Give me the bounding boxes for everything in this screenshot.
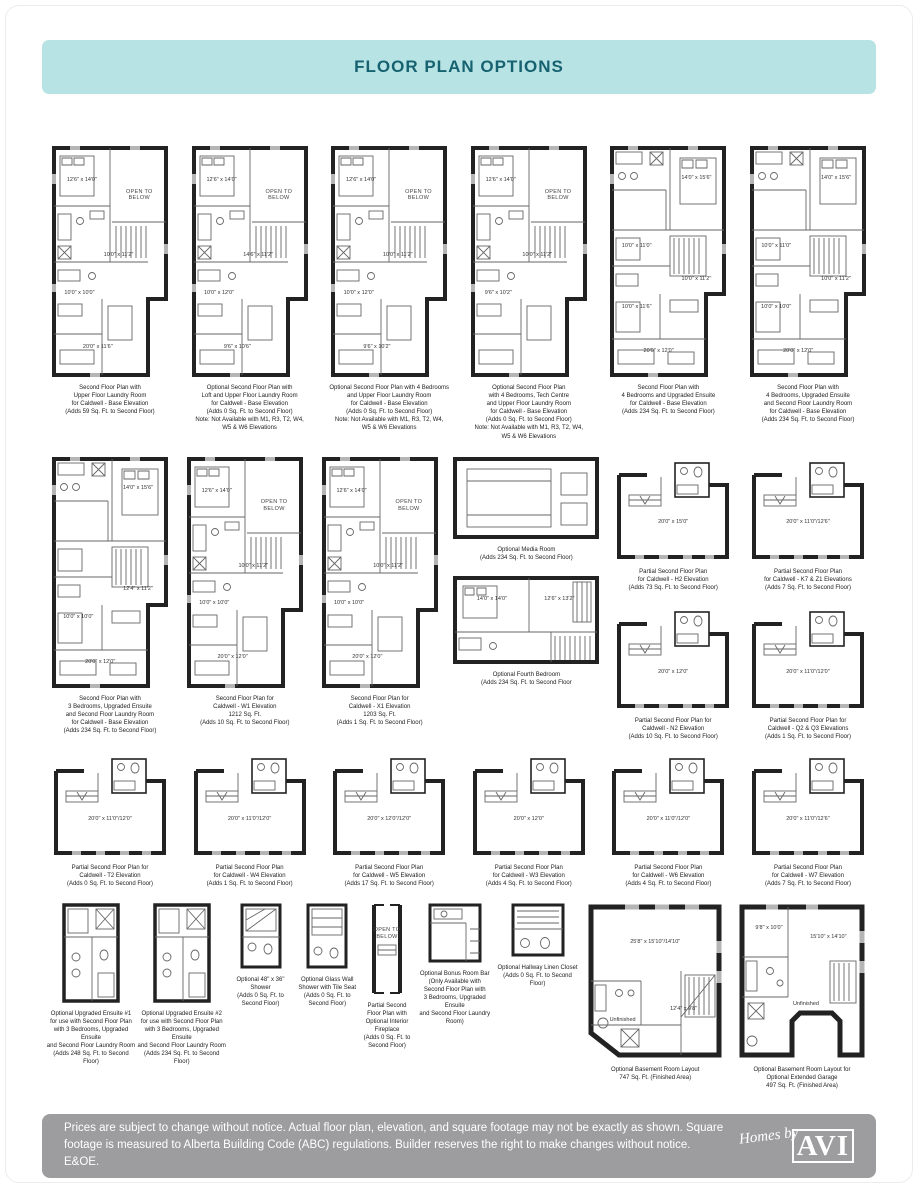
floor-plan-cell: Optional Upgraded Ensuite #1 for use wit… [46, 901, 136, 1067]
plan-caption: Second Floor Plan for Caldwell - W1 Elev… [200, 695, 289, 727]
room-dimension-label: 10'0" x 11'0" [612, 243, 661, 250]
floor-plan-drawing [58, 901, 124, 1005]
plan-caption: Second Floor Plan for Caldwell - X1 Elev… [337, 695, 423, 727]
room-dimension-label: 15'10" x 14'10" [794, 934, 863, 941]
room-dimension-label: 20'0" x 11'0"/12'0" [59, 816, 161, 823]
room-dimension-label: 20'0" x 11'0"/12'0" [198, 816, 300, 823]
floor-plan-drawing [451, 574, 601, 666]
floor-plan-cell: 14'0" x 14'0" 12'6" x 13'2" Optional Fou… [450, 574, 602, 687]
floor-plan-cell: 12'6" x 14'0" OPEN TO BELOW 10'0" x 11'2… [316, 455, 444, 727]
floor-plan-drawing [508, 901, 568, 959]
floor-plan-cell: Optional Hallway Linen Closet (Adds 0 Sq… [497, 901, 579, 988]
floor-plan-drawing [49, 751, 171, 859]
plan-row-3: 20'0" x 11'0"/12'0" Partial Second Floor… [46, 751, 872, 888]
room-dimension-label: 14'0" x 15'6" [668, 175, 724, 182]
floor-plan-drawing [328, 751, 450, 859]
room-dimension-label: 20'0" x 12'0"/12'0" [338, 816, 440, 823]
plan-caption: Partial Second Floor Plan for Caldwell -… [765, 864, 851, 888]
room-dimension-label: 12'6" x 14'0" [56, 177, 107, 184]
room-dimension-label: 20'0" x 11'0"/12'0" [757, 669, 859, 676]
plan-caption: Partial Second Floor Plan for Caldwell -… [344, 864, 433, 888]
room-dimension-label: 10'0" x 10'0" [54, 614, 103, 621]
floor-plan-stack: 20'0" x 11'0"/12'6" Partial Second Floor… [744, 455, 872, 742]
floor-plan-cell: 14'0" x 15'6" 10'0" x 11'0" 10'0" x 11'2… [744, 144, 872, 424]
room-dimension-label: 14'6" x 11'2" [230, 252, 286, 259]
floor-plan-stack: 20'0" x 15'0" Partial Second Floor Plan … [609, 455, 737, 742]
plan-caption: Partial Second Floor Plan for Caldwell -… [765, 717, 851, 741]
floor-plan-cell: Optional Bonus Room Bar (Only Available … [414, 901, 496, 1027]
page-header-banner: FLOOR PLAN OPTIONS [42, 40, 876, 94]
floor-plan-cell: Optional Upgraded Ensuite #2 for use wit… [137, 901, 227, 1067]
plan-caption: Optional Second Floor Plan with Loft and… [195, 384, 304, 433]
plan-caption: Partial Second Floor Plan for Caldwell -… [486, 864, 572, 888]
room-dimension-label: 25'8" x 15'10"/14'10" [598, 939, 712, 946]
floor-plan-drawing [149, 901, 215, 1005]
floor-plan-drawing [747, 604, 869, 712]
room-dimension-label: 20'0" x 11'6" [64, 344, 132, 351]
floor-plan-cell: OPEN TO BELOW Partial Second Floor Plan … [361, 901, 413, 1051]
floor-plan-stack: Optional Media Room (Adds 234 Sq. Ft. to… [450, 455, 602, 687]
floor-plan-cell: 12'6" x 14'0" OPEN TO BELOW 10'0" x 11'2… [325, 144, 453, 433]
room-dimension-label: 10'0" x 11'6" [612, 304, 661, 311]
plan-row-4: Optional Upgraded Ensuite #1 for use wit… [46, 901, 872, 1090]
room-dimension-label: 10'0" x 10'0" [323, 600, 374, 607]
room-dimension-label: 12'6" x 14'0" [475, 177, 526, 184]
open-to-below-label: OPEN TO BELOW [247, 499, 301, 512]
room-dimension-label: 14'0" x 14'0" [460, 596, 523, 603]
room-dimension-label: 10'0" x 11'2" [370, 252, 426, 259]
floor-plan-cell: 12'6" x 14'0" OPEN TO BELOW 10'0" x 11'2… [181, 455, 309, 727]
room-dimension-label: 12'4" x 9'8" [650, 1006, 718, 1013]
plan-caption: Partial Second Floor Plan for Caldwell -… [207, 864, 293, 888]
footer: Prices are subject to change without not… [42, 1114, 876, 1178]
floor-plan-drawing [365, 901, 409, 997]
room-dimension-label: 12'6" x 14'0" [196, 177, 247, 184]
floor-plan-cell: 20'0" x 12'0" Partial Second Floor Plan … [465, 751, 593, 888]
floor-plan-cell: 12'6" x 14'0" OPEN TO BELOW 10'0" x 11'2… [465, 144, 593, 441]
floor-plan-cell: Optional 48" x 36" Shower (Adds 0 Sq. Ft… [228, 901, 294, 1008]
room-dimension-label: 20'0" x 12'0" [478, 816, 580, 823]
room-dimension-label: 12'6" x 14'0" [336, 177, 387, 184]
room-dimension-label: 9'6" x 10'2" [343, 344, 411, 351]
room-dimension-label: 20'0" x 11'0"/12'0" [617, 816, 719, 823]
room-dimension-label: 10'0" x 11'2" [90, 252, 146, 259]
floor-plan-cell: 20'0" x 11'0"/12'0" Partial Second Floor… [604, 751, 732, 888]
floor-plan-drawing [303, 901, 351, 971]
floor-plan-drawing [189, 751, 311, 859]
floor-plan-cell: 20'0" x 11'0"/12'0" Partial Second Floor… [744, 604, 872, 741]
plan-caption: Optional Basement Room Layout 747 Sq. Ft… [611, 1066, 699, 1082]
room-dimension-label: 10'0" x 11'0" [752, 243, 801, 250]
floor-plan-drawing [451, 455, 601, 541]
room-dimension-label: 9'8" x 10'0" [744, 925, 794, 932]
floor-plan-cell: 25'8" x 15'10"/14'10" Unfinished 12'4" x… [579, 901, 731, 1082]
room-dimension-label: 20'0" x 12'0" [198, 654, 266, 661]
floor-plan-cell: 9'8" x 10'0" 15'10" x 14'10" Unfinished … [732, 901, 872, 1090]
floor-plan-cell: 20'0" x 11'0"/12'6" Partial Second Floor… [744, 751, 872, 888]
floor-plan-drawing [425, 901, 485, 965]
room-dimension-label: 20'0" x 12'0" [627, 348, 690, 355]
room-dimension-label: 9'6" x 10'2" [473, 290, 524, 297]
floor-plan-cell: 20'0" x 15'0" Partial Second Floor Plan … [609, 455, 737, 592]
plan-caption: Partial Second Floor Plan for Caldwell -… [628, 568, 717, 592]
plan-caption: Second Floor Plan with Upper Floor Laund… [65, 384, 154, 416]
room-dimension-label: 10'0" x 11'2" [808, 276, 864, 283]
floor-plan-cell: Optional Glass Wall Shower with Tile Sea… [294, 901, 360, 1008]
plan-caption: Second Floor Plan with 3 Bedrooms, Upgra… [64, 695, 157, 735]
floor-plan-cell: 20'0" x 12'0"/12'0" Partial Second Floor… [325, 751, 453, 888]
floor-plan-cell: 14'0" x 15'6" 12'4" x 11'2" 10'0" x 10'0… [46, 455, 174, 735]
room-dimension-label: 10'0" x 11'2" [225, 563, 281, 570]
brand-logo-name: AVI [792, 1129, 854, 1163]
plan-caption: Optional 48" x 36" Shower (Adds 0 Sq. Ft… [228, 976, 294, 1008]
room-dimension-label: 12'6" x 13'2" [529, 596, 589, 603]
plan-caption: Partial Second Floor Plan for Caldwell -… [628, 717, 717, 741]
plan-caption: Optional Media Room (Adds 234 Sq. Ft. to… [480, 546, 573, 562]
room-dimension-label: 20'0" x 15'0" [622, 519, 724, 526]
floor-plan-drawing [612, 455, 734, 563]
floor-plan-cell: 20'0" x 12'0" Partial Second Floor Plan … [609, 604, 737, 741]
plan-caption: Second Floor Plan with 4 Bedrooms and Up… [622, 384, 716, 416]
floor-plan-drawing [237, 901, 285, 971]
plan-caption: Optional Upgraded Ensuite #2 for use wit… [137, 1010, 227, 1067]
room-dimension-label: 10'0" x 11'2" [509, 252, 565, 259]
plan-caption: Partial Second Floor Plan for Caldwell -… [67, 864, 153, 888]
room-dimension-label: 20'0" x 12'0" [766, 348, 829, 355]
room-dimension-label: 12'4" x 11'2" [110, 586, 166, 593]
floor-plan-drawing [747, 751, 869, 859]
room-dimension-label: 10'0" x 12'0" [333, 290, 384, 297]
room-dimension-label: 20'0" x 12'0" [69, 659, 132, 666]
open-to-below-label: OPEN TO BELOW [382, 499, 436, 512]
plan-caption: Optional Fourth Bedroom (Adds 234 Sq. Ft… [481, 671, 572, 687]
plan-caption: Partial Second Floor Plan for Caldwell -… [625, 864, 711, 888]
room-dimension-label: 10'0" x 10'0" [189, 600, 240, 607]
plan-caption: Optional Second Floor Plan with 4 Bedroo… [329, 384, 449, 433]
plan-caption: Optional Second Floor Plan with 4 Bedroo… [475, 384, 584, 441]
room-dimension-label: 10'0" x 11'2" [360, 563, 416, 570]
footer-disclaimer: Prices are subject to change without not… [64, 1120, 724, 1172]
plan-caption: Second Floor Plan with 4 Bedrooms, Upgra… [762, 384, 855, 424]
plan-caption: Optional Glass Wall Shower with Tile Sea… [298, 976, 356, 1008]
room-dimension-label: 10'0" x 11'2" [668, 276, 724, 283]
floor-plan-drawing [612, 604, 734, 712]
floor-plan-cell: 20'0" x 11'0"/12'0" Partial Second Floor… [186, 751, 314, 888]
floor-plan-drawing [607, 751, 729, 859]
brand-logo-script: Homes by [738, 1125, 799, 1149]
room-dimension-label: 12'6" x 14'0" [326, 488, 377, 495]
floor-plan-drawing [468, 751, 590, 859]
floor-plan-cell: 20'0" x 11'0"/12'6" Partial Second Floor… [744, 455, 872, 592]
flyer-page: FLOOR PLAN OPTIONS 12'6" x 14'0" OPEN TO… [0, 0, 918, 1188]
plan-row-1: 12'6" x 14'0" OPEN TO BELOW 10'0" x 11'2… [46, 144, 872, 441]
floor-plan-drawing [747, 455, 869, 563]
floor-plan-cell: 14'0" x 15'6" 10'0" x 11'0" 10'0" x 11'2… [604, 144, 732, 416]
open-to-below-label: OPEN TO BELOW [392, 189, 446, 202]
floor-plan-drawing [584, 901, 726, 1061]
room-dimension-label: 10'0" x 10'0" [54, 290, 105, 297]
plan-caption: Optional Upgraded Ensuite #1 for use wit… [46, 1010, 136, 1067]
plan-row-2: 14'0" x 15'6" 12'4" x 11'2" 10'0" x 10'0… [46, 455, 872, 742]
brand-logo: Homes by AVI [732, 1129, 854, 1163]
room-dimension-label: 20'0" x 11'0"/12'6" [757, 519, 859, 526]
unfinished-label: Unfinished [593, 1017, 653, 1024]
plan-caption: Optional Bonus Room Bar (Only Available … [414, 970, 496, 1027]
room-dimension-label: 20'0" x 12'0" [622, 669, 724, 676]
floor-plan-cell: Optional Media Room (Adds 234 Sq. Ft. to… [450, 455, 602, 562]
open-to-below-label: OPEN TO BELOW [252, 189, 306, 202]
open-to-below-label: OPEN TO BELOW [112, 189, 166, 202]
floor-plan-cell: 20'0" x 11'0"/12'0" Partial Second Floor… [46, 751, 174, 888]
room-dimension-label: 14'0" x 15'6" [110, 485, 166, 492]
plan-caption: Optional Basement Room Layout for Option… [753, 1066, 850, 1090]
room-dimension-label: 14'0" x 15'6" [808, 175, 864, 182]
room-dimension-label: 12'6" x 14'0" [191, 488, 242, 495]
room-dimension-label: 10'0" x 10'0" [752, 304, 801, 311]
plan-caption: Partial Second Floor Plan for Caldwell -… [764, 568, 852, 592]
open-to-below-label: OPEN TO BELOW [531, 189, 585, 202]
plan-caption: Optional Hallway Linen Closet (Adds 0 Sq… [497, 964, 579, 988]
room-dimension-label: 9'6" x 10'6" [203, 344, 271, 351]
floor-plan-cell: 12'6" x 14'0" OPEN TO BELOW 10'0" x 11'2… [46, 144, 174, 416]
room-dimension-label: 20'0" x 11'0"/12'6" [757, 816, 859, 823]
plan-caption: Partial Second Floor Plan with Optional … [361, 1002, 413, 1051]
floor-plan-cell: 12'6" x 14'0" OPEN TO BELOW 14'6" x 11'2… [186, 144, 314, 433]
unfinished-label: Unfinished [776, 1001, 837, 1008]
room-dimension-label: 20'0" x 12'0" [333, 654, 401, 661]
floor-plan-grid: 12'6" x 14'0" OPEN TO BELOW 10'0" x 11'2… [46, 144, 872, 1090]
page-title: FLOOR PLAN OPTIONS [354, 57, 564, 77]
room-dimension-label: 10'0" x 12'0" [193, 290, 244, 297]
open-to-below-label: OPEN TO BELOW [354, 927, 419, 940]
